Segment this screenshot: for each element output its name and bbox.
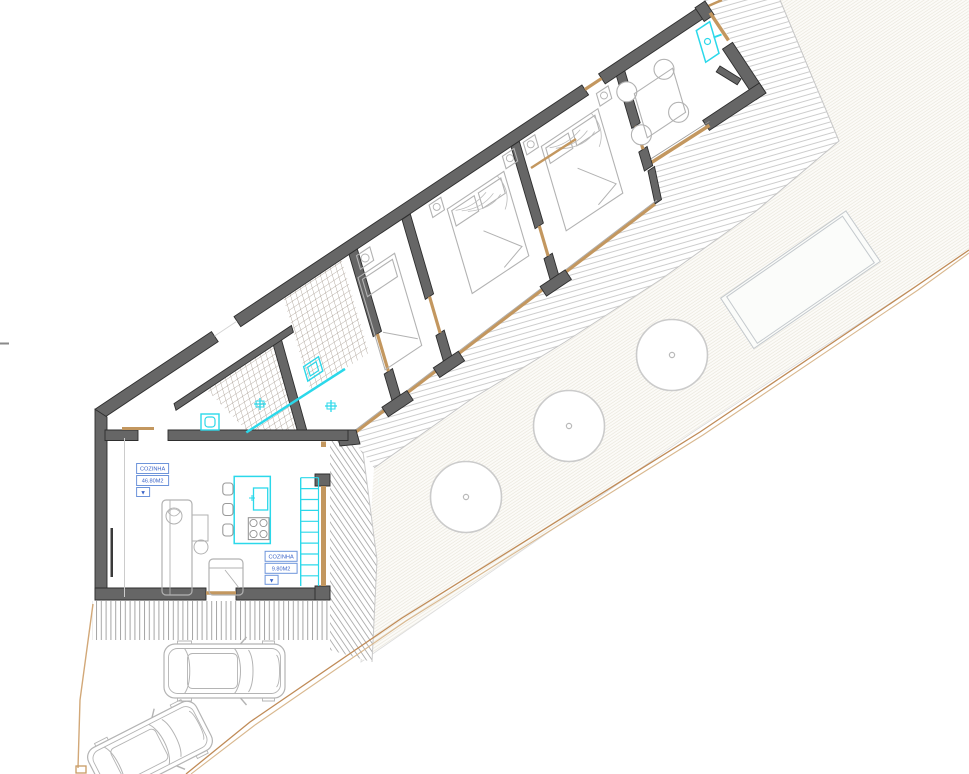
svg-text:COZINHA: COZINHA <box>269 554 294 560</box>
svg-text:9.80M2: 9.80M2 <box>272 566 291 572</box>
svg-text:46.80M2: 46.80M2 <box>142 479 164 485</box>
svg-text:COZINHA: COZINHA <box>140 467 165 473</box>
svg-text:▼: ▼ <box>269 578 275 584</box>
svg-text:▼: ▼ <box>140 491 146 497</box>
